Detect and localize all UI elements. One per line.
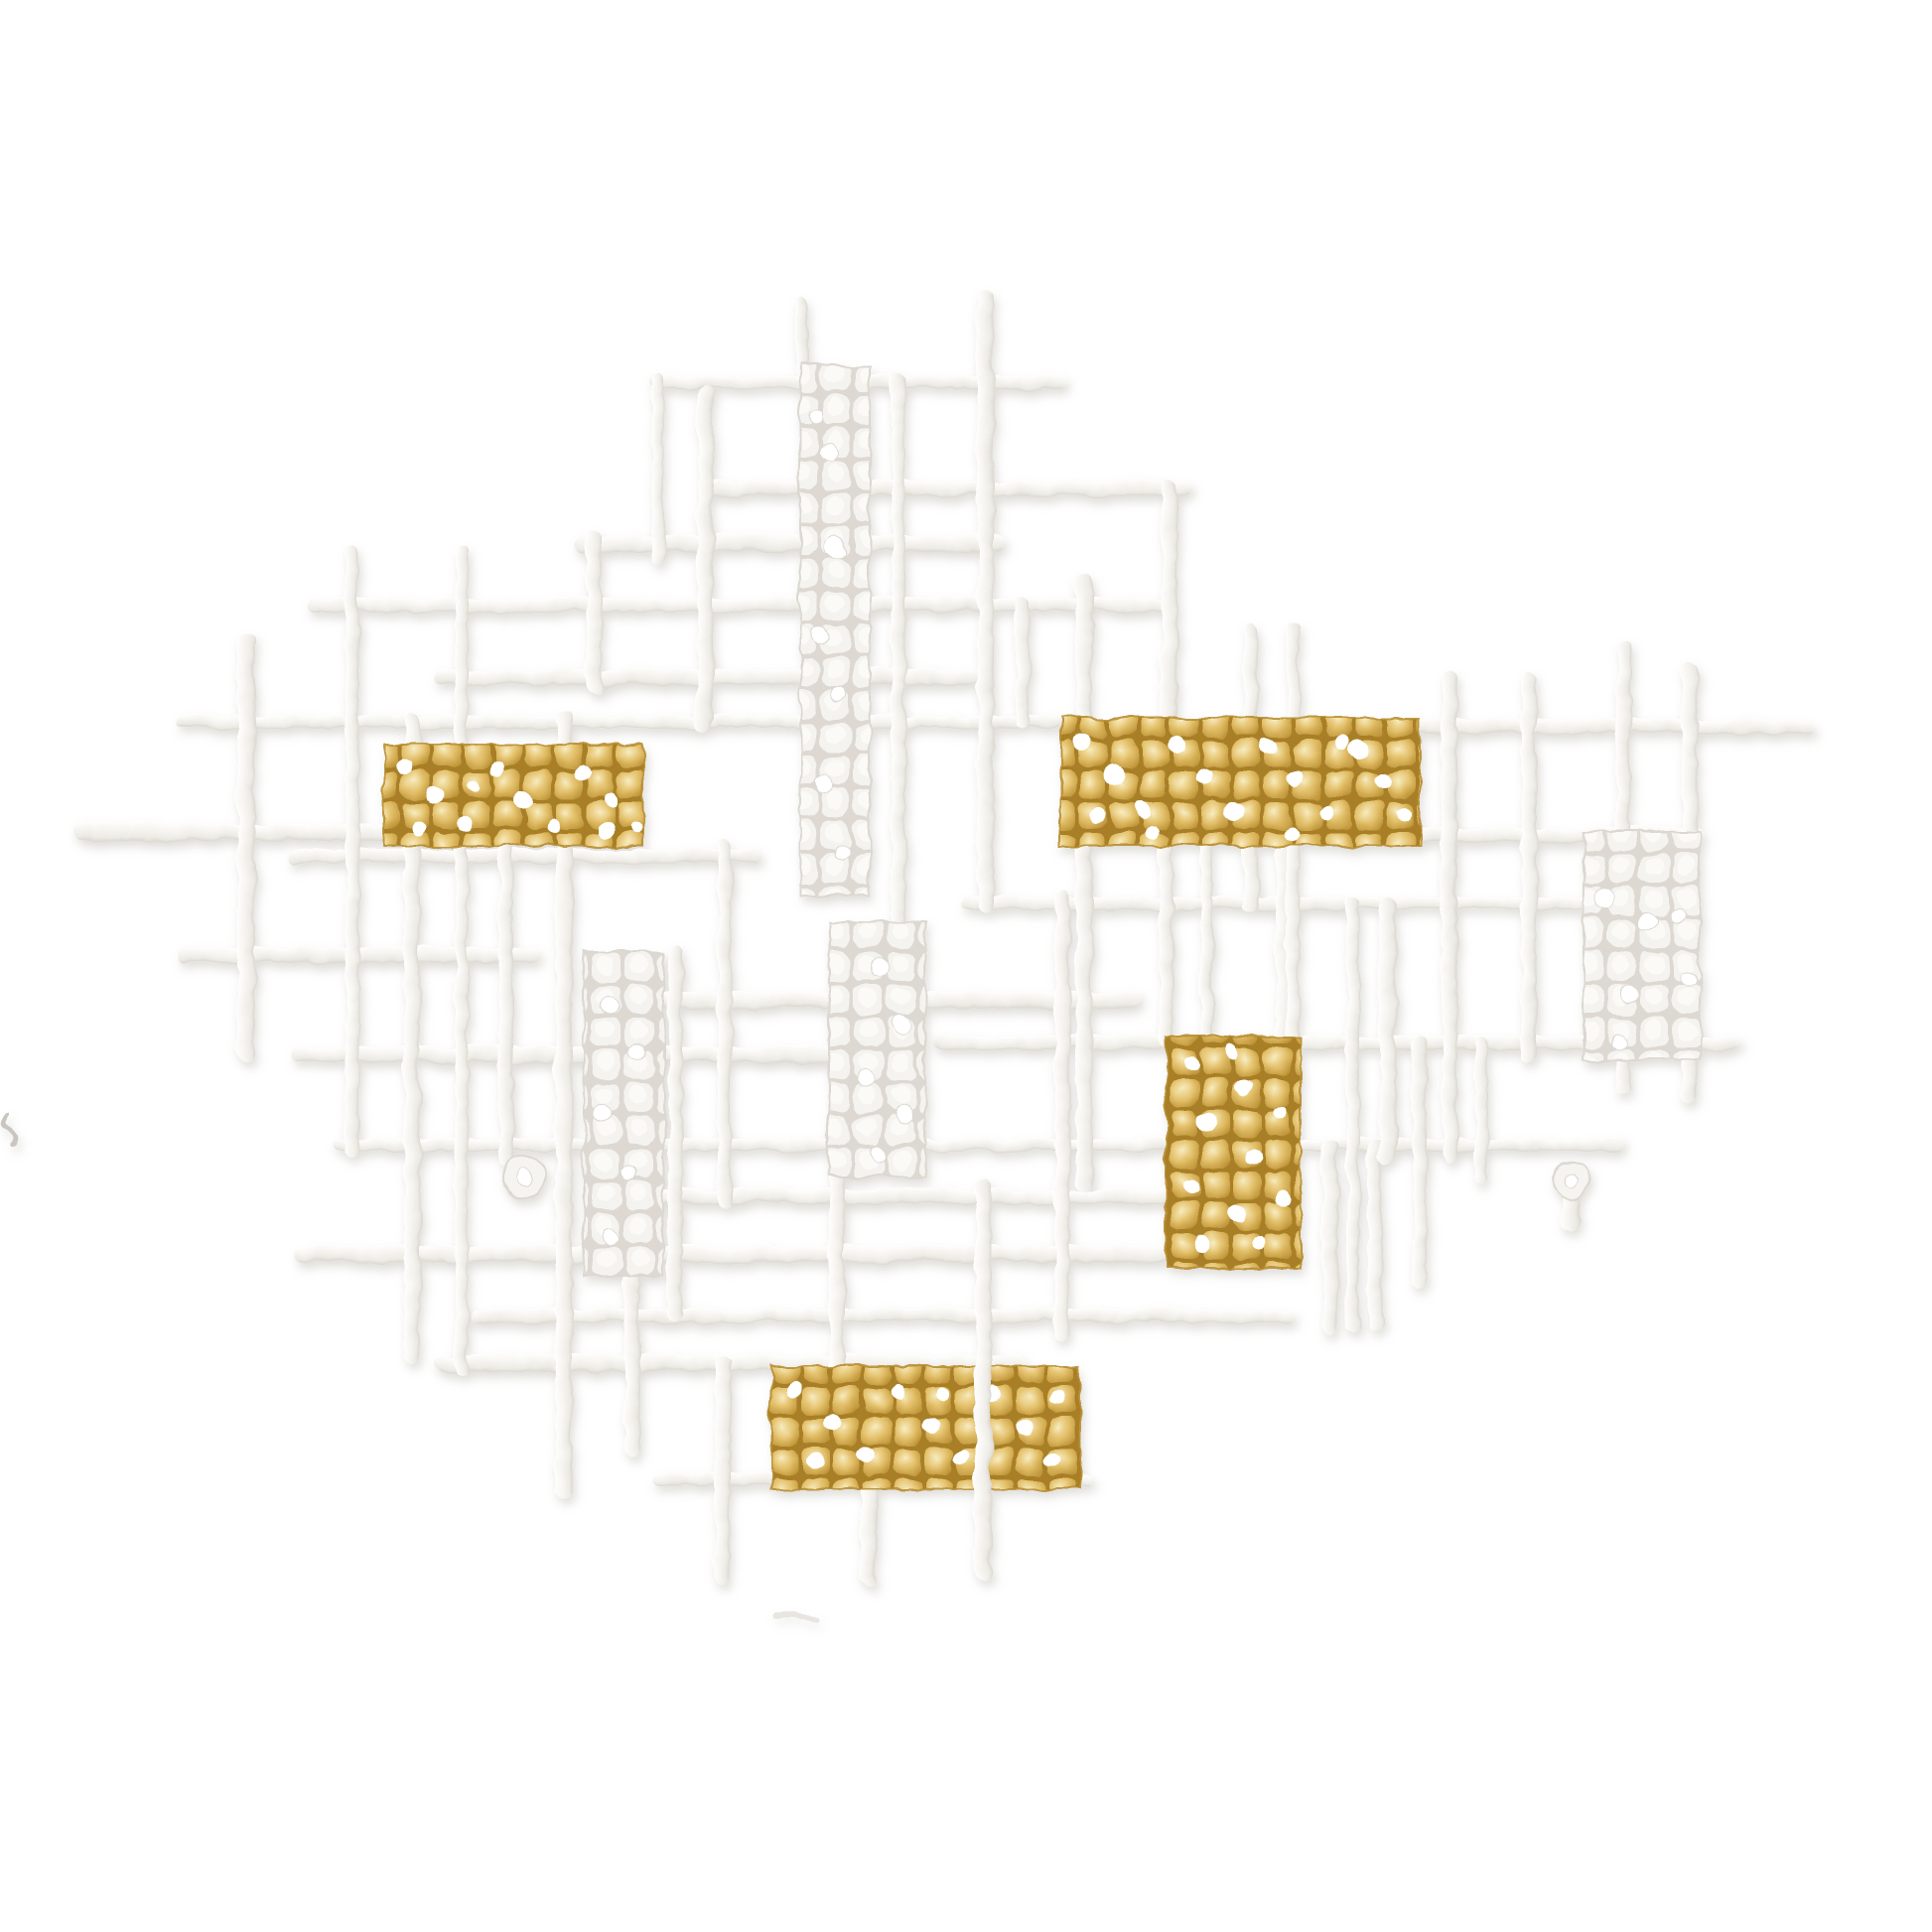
gold-panel-hole: [1134, 801, 1150, 817]
gold-panel-hole: [629, 822, 641, 834]
gold-panel-hole: [1168, 736, 1185, 754]
gold-panel-hole: [1252, 1236, 1266, 1250]
gold-panel-hole: [426, 785, 444, 803]
mesh-hole: [825, 537, 847, 559]
gold-panel-hole: [1283, 826, 1299, 842]
gold-panel-hole: [605, 793, 619, 807]
wall-sculpture: [0, 0, 1932, 1932]
gold-panel-hole: [1398, 807, 1412, 821]
gold-panel-hole: [1274, 1105, 1288, 1119]
gold-panel-hole: [598, 822, 614, 838]
mesh-hole: [629, 1042, 645, 1058]
gold-panel-hole: [576, 763, 592, 779]
gold-panel-hole: [786, 1382, 802, 1398]
mesh-hole: [1681, 972, 1695, 986]
mesh-hole: [601, 996, 619, 1014]
gold-panel-hole: [1227, 1204, 1245, 1222]
mesh-hole: [604, 1229, 620, 1245]
gold-panel-hole: [396, 759, 412, 774]
knob-hole: [1565, 1174, 1579, 1188]
sculpture-group: [5, 296, 1807, 1619]
mesh-hole: [897, 1105, 914, 1123]
gold-panel-hole: [514, 791, 532, 809]
mesh-hole: [870, 1146, 886, 1162]
gold-panel: [1167, 1037, 1301, 1269]
mesh-hole: [1670, 907, 1686, 923]
gold-panel-hole: [1181, 1178, 1197, 1194]
mesh-hole: [1637, 912, 1655, 930]
mesh-hole: [1621, 986, 1639, 1004]
gold-panel-hole: [469, 780, 481, 792]
gold-panel-hole: [858, 1447, 874, 1462]
gold-panel-hole: [1288, 770, 1304, 786]
gold-panel-hole: [922, 1417, 940, 1435]
gold-panel-hole: [1225, 801, 1243, 819]
gold-panel-hole: [1245, 1149, 1261, 1165]
gold-panel-hole: [823, 1413, 841, 1431]
gold-panel-hole: [1145, 825, 1159, 839]
plaster-speck: [5, 1114, 15, 1144]
gold-panel-hole: [1234, 1078, 1252, 1096]
mesh-hole: [818, 442, 838, 462]
gold-panel-hole: [1224, 1045, 1238, 1059]
gold-panel-hole: [1197, 1113, 1215, 1131]
gold-panel-hole: [1318, 804, 1334, 820]
gold-panel-hole: [1349, 740, 1367, 758]
gold-panel-hole: [936, 1388, 950, 1402]
gold-panel-hole: [1074, 735, 1090, 751]
gold-panel-hole: [806, 1453, 822, 1469]
gold-panel-hole: [489, 762, 503, 776]
knob-hole: [516, 1170, 531, 1184]
mesh-hole: [810, 411, 822, 423]
gold-panel-hole: [1193, 1235, 1209, 1251]
gold-panel-hole: [1089, 808, 1105, 824]
mesh-hole: [892, 1015, 911, 1035]
gold-panel-hole: [1376, 772, 1392, 788]
mesh-hole: [1610, 1035, 1626, 1050]
mesh-hole: [815, 775, 833, 793]
gold-panel-hole: [547, 820, 561, 834]
gold-panel-hole: [1017, 1420, 1033, 1436]
gold-panel-hole: [1105, 765, 1123, 783]
gold-panel-hole: [1050, 1391, 1064, 1405]
gold-panel-hole: [1045, 1452, 1059, 1466]
mesh-hole: [831, 687, 847, 703]
gold-panel-hole: [1196, 768, 1212, 784]
gold-panel-hole: [411, 822, 425, 836]
product-photo: [0, 0, 1932, 1932]
mesh-hole: [593, 1105, 611, 1123]
mesh-hole: [834, 844, 850, 860]
mesh-hole: [813, 626, 831, 644]
mesh-hole: [1594, 889, 1614, 908]
shadow-smudge: [776, 1615, 818, 1619]
gold-panel-hole: [1183, 1054, 1199, 1070]
gold-panel-hole: [891, 1384, 906, 1400]
gold-panel-hole: [1275, 1188, 1291, 1204]
gold-panel-hole: [953, 1449, 969, 1465]
gold-panel-hole: [1335, 736, 1349, 750]
gold-panel-hole: [457, 816, 473, 832]
mesh-hole: [621, 1166, 637, 1181]
gold-panel-hole: [1260, 739, 1276, 755]
mesh-hole: [857, 1068, 875, 1086]
mesh-hole: [870, 959, 888, 977]
mesh-panel: [1584, 832, 1700, 1060]
